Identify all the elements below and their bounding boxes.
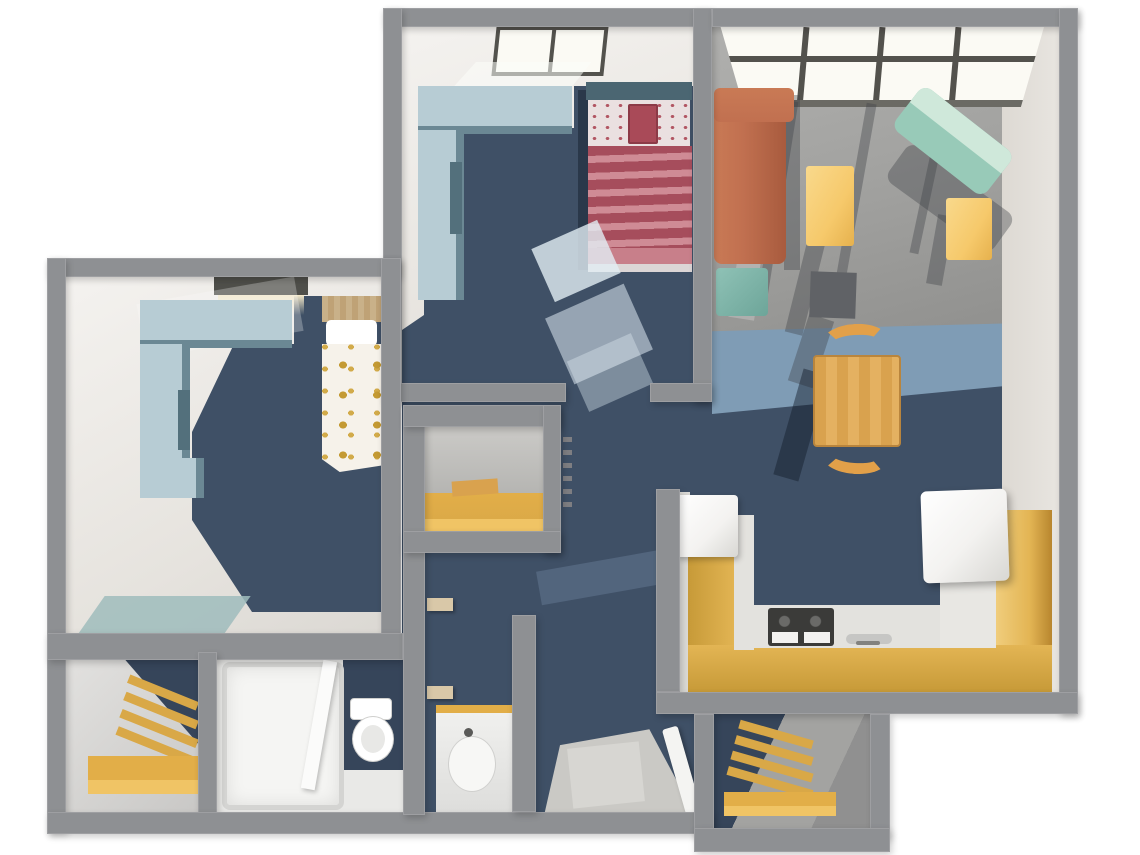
kitchen-counter-bottom: [688, 645, 1052, 692]
bed1-cushion: [628, 104, 658, 144]
wall-shelf: [427, 598, 453, 611]
wall-storage-right: [870, 714, 890, 838]
shelf-base-front: [88, 780, 200, 794]
window-mullion-icon: [796, 27, 809, 107]
kitchen-faucet: [856, 641, 880, 645]
window-mullion-icon: [548, 30, 556, 72]
toilet-seat: [361, 725, 385, 753]
door-dash: [563, 502, 572, 507]
oven-front: [804, 632, 830, 643]
desk-unit-top: [140, 300, 292, 342]
door-dash: [563, 437, 572, 442]
coffee-table: [806, 166, 854, 246]
wall-bedroom1-living-divider: [693, 8, 712, 402]
toilet-bowl: [352, 716, 394, 762]
wall-storage-left: [694, 714, 714, 838]
entry-mat: [567, 741, 645, 808]
door-dash: [563, 450, 572, 455]
sofa-arm: [714, 88, 794, 122]
closet-wood-item: [452, 478, 499, 496]
media-stand: [809, 271, 857, 319]
wall-bedroom1-bottom-left: [383, 383, 566, 402]
ottoman: [716, 268, 768, 316]
wall-main-bottom: [47, 812, 712, 834]
wall-kitchen-bottom: [656, 692, 1078, 714]
kitchen-countertop-right: [940, 578, 996, 648]
wall-bedroom2-right: [381, 258, 401, 652]
wall-walkin-top: [403, 405, 561, 427]
appliance-left: [676, 495, 738, 557]
bedroom2-window-lintel: [214, 277, 308, 295]
wall-closet-bath-divider: [198, 652, 217, 813]
bed2-pillow: [326, 320, 377, 346]
wall-bedroom2-left: [47, 258, 66, 832]
loveseat: [893, 86, 1017, 202]
door-dash: [563, 489, 572, 494]
oven-front: [772, 632, 798, 643]
teal-rug: [75, 596, 250, 638]
wall-bedroom2-bottom: [47, 633, 403, 660]
wall-storage-bottom: [694, 828, 890, 852]
wall-plumbing-chase: [403, 405, 425, 815]
bed2-polkadot-duvet: [322, 344, 381, 472]
desk-unit-shelf-dark: [450, 162, 462, 234]
wall-vanity-right: [512, 615, 536, 812]
wall-living-right: [1059, 8, 1078, 714]
loveseat-cushion: [910, 84, 1015, 173]
wall-shelf: [427, 686, 453, 699]
refrigerator: [920, 489, 1009, 584]
window-transom-bar: [714, 56, 1044, 62]
door-dash: [563, 463, 572, 468]
bed1-headboard: [586, 82, 692, 100]
shelf-base: [88, 756, 200, 780]
desk-unit-step-edge: [196, 458, 204, 498]
desk-unit-shelf-dark: [178, 390, 190, 450]
desk-unit-step: [140, 458, 204, 498]
bedroom1-window: [491, 26, 608, 76]
wall-bedroom2-top: [47, 258, 400, 277]
wall-bedroom1-top: [383, 8, 712, 27]
bed1-sheet-edge: [588, 264, 692, 272]
desk-unit-top: [418, 86, 572, 128]
bed2-headboard: [322, 296, 381, 322]
vanity-faucet: [464, 728, 473, 737]
wall-walkin-bottom: [403, 531, 561, 553]
shelf-base-front: [724, 806, 836, 816]
closet-shelf-front: [425, 519, 543, 531]
window-mullion-icon: [872, 27, 885, 107]
bed1-striped-duvet: [588, 146, 692, 250]
side-table: [946, 198, 992, 260]
floor-plan-render: [0, 0, 1140, 855]
door-dash: [563, 476, 572, 481]
wall-living-top: [712, 8, 1078, 27]
dining-table: [813, 355, 901, 447]
wall-kitchen-left: [656, 489, 680, 692]
vanity-sink: [448, 736, 496, 792]
wall-bedroom1-bottom-right: [650, 383, 712, 402]
loveseat-body: [891, 84, 1016, 198]
